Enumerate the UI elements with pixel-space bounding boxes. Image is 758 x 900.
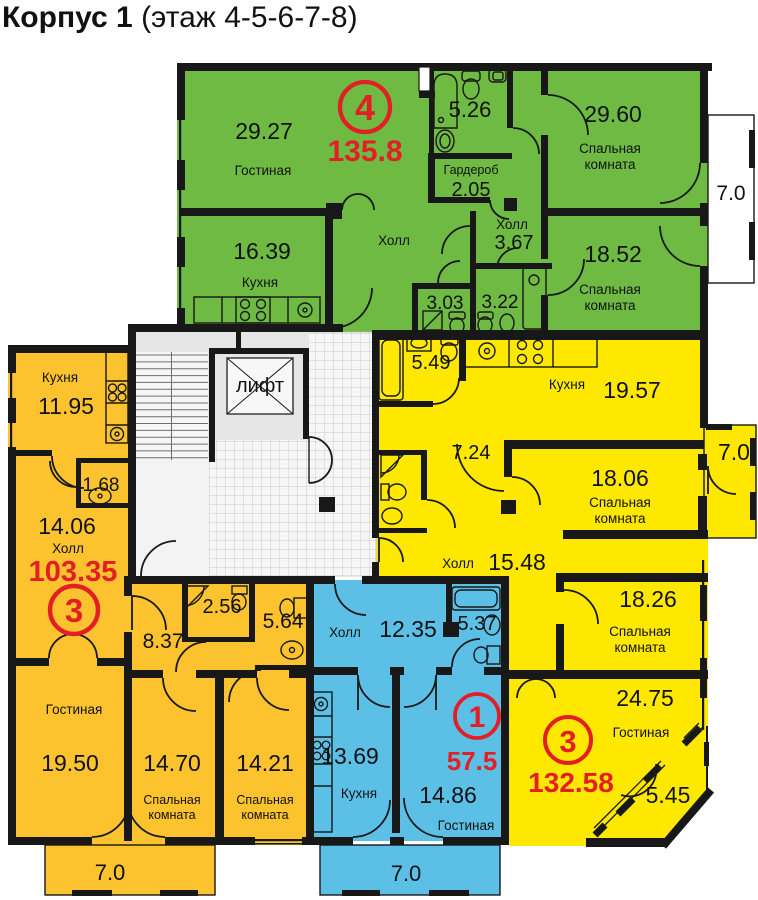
svg-text:29.27: 29.27 <box>235 118 293 144</box>
svg-text:Холл: Холл <box>442 556 474 571</box>
svg-text:135.8: 135.8 <box>327 135 402 168</box>
svg-text:14.86: 14.86 <box>419 782 477 808</box>
svg-text:Спальная: Спальная <box>236 793 293 807</box>
svg-text:Холл: Холл <box>496 217 528 232</box>
svg-text:18.26: 18.26 <box>619 586 677 612</box>
svg-text:Спальная: Спальная <box>609 624 671 639</box>
svg-text:комната: комната <box>584 157 636 172</box>
svg-text:Корпус 1 (этаж 4-5-6-7-8): Корпус 1 (этаж 4-5-6-7-8) <box>2 1 358 34</box>
svg-text:7.0: 7.0 <box>718 439 750 465</box>
svg-text:Холл: Холл <box>378 233 410 248</box>
svg-text:Гостиная: Гостиная <box>438 818 495 833</box>
svg-text:5.64: 5.64 <box>263 610 304 633</box>
svg-text:3.22: 3.22 <box>482 292 519 313</box>
svg-text:Кухня: Кухня <box>549 377 585 392</box>
svg-text:19.57: 19.57 <box>603 377 661 403</box>
svg-text:18.52: 18.52 <box>584 241 642 267</box>
svg-text:Гостиная: Гостиная <box>46 702 103 717</box>
svg-text:12.35: 12.35 <box>379 616 437 642</box>
svg-text:Кухня: Кухня <box>341 786 377 801</box>
svg-text:Спальная: Спальная <box>579 282 641 297</box>
svg-text:Спальная: Спальная <box>143 793 200 807</box>
svg-text:1: 1 <box>469 701 486 734</box>
svg-text:15.48: 15.48 <box>488 549 546 575</box>
svg-text:1.68: 1.68 <box>83 475 120 496</box>
svg-text:7.0: 7.0 <box>391 861 422 886</box>
svg-text:13.69: 13.69 <box>321 743 379 769</box>
svg-text:2.05: 2.05 <box>452 179 491 201</box>
svg-text:14.21: 14.21 <box>236 750 294 776</box>
svg-text:комната: комната <box>148 808 195 822</box>
svg-text:3.67: 3.67 <box>495 232 534 254</box>
svg-text:Гостиная: Гостиная <box>613 725 670 740</box>
svg-text:132.58: 132.58 <box>528 767 614 798</box>
svg-text:Гардероб: Гардероб <box>444 163 499 177</box>
svg-text:Спальная: Спальная <box>579 141 641 156</box>
svg-text:5.37: 5.37 <box>458 613 497 635</box>
svg-text:5.26: 5.26 <box>449 97 492 122</box>
svg-text:14.06: 14.06 <box>38 513 96 539</box>
svg-text:8.37: 8.37 <box>143 630 184 653</box>
svg-text:4: 4 <box>355 87 375 128</box>
svg-text:комната: комната <box>594 511 646 526</box>
svg-text:Гостиная: Гостиная <box>235 163 292 178</box>
svg-text:Холл: Холл <box>329 625 361 640</box>
svg-text:7.0: 7.0 <box>716 182 745 205</box>
svg-text:24.75: 24.75 <box>616 685 674 711</box>
svg-text:Спальная: Спальная <box>589 495 651 510</box>
svg-text:57.5: 57.5 <box>447 746 498 776</box>
svg-text:19.50: 19.50 <box>41 750 99 776</box>
svg-text:3: 3 <box>65 592 83 629</box>
svg-text:Кухня: Кухня <box>42 370 78 385</box>
svg-text:комната: комната <box>614 640 666 655</box>
svg-text:Кухня: Кухня <box>242 275 278 290</box>
svg-text:5.49: 5.49 <box>412 352 451 374</box>
svg-text:7.0: 7.0 <box>95 860 126 885</box>
svg-text:29.60: 29.60 <box>584 101 642 127</box>
svg-text:комната: комната <box>241 808 288 822</box>
svg-text:3.03: 3.03 <box>427 293 464 314</box>
svg-text:18.06: 18.06 <box>591 465 649 491</box>
svg-text:16.39: 16.39 <box>233 238 291 264</box>
svg-text:14.70: 14.70 <box>143 750 201 776</box>
svg-text:2.56: 2.56 <box>203 596 242 618</box>
svg-text:103.35: 103.35 <box>29 556 118 588</box>
svg-text:7.24: 7.24 <box>452 442 491 464</box>
svg-text:Холл: Холл <box>52 541 84 556</box>
svg-text:11.95: 11.95 <box>38 393 94 419</box>
svg-text:5.45: 5.45 <box>646 782 691 808</box>
svg-text:комната: комната <box>584 298 636 313</box>
svg-text:3: 3 <box>559 724 576 759</box>
svg-text:лифт: лифт <box>236 375 284 397</box>
